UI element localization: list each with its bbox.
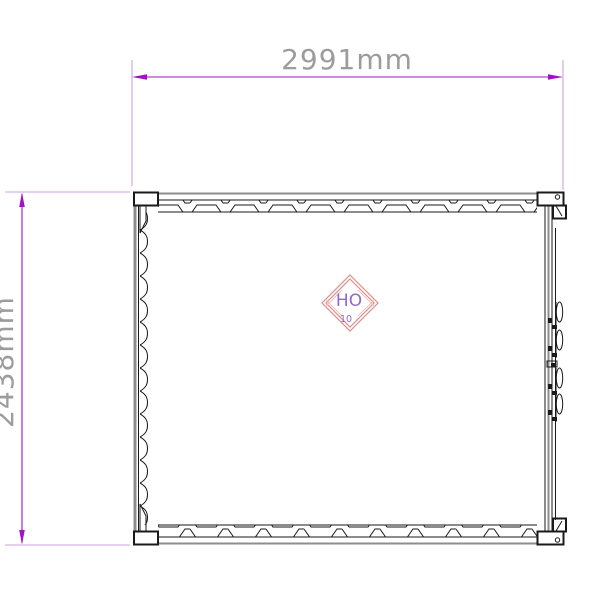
bottom-corrugation [158,525,537,537]
container-plan-drawing: 2991mm 2438mm [0,0,600,600]
dimension-arrow-right-icon [548,74,563,80]
container-body [134,193,566,545]
bottom-rail [157,525,538,544]
drawing-canvas: 2991mm 2438mm [0,0,600,600]
right-door [545,206,563,531]
top-corrugation [158,201,537,213]
left-corrugation [139,212,149,525]
left-wall [135,206,149,531]
dimension-arrow-left-icon [132,74,147,80]
left-dimension: 2438mm [0,192,130,545]
top-rail [157,194,538,213]
logo-text-line2: 10 [340,314,352,325]
logo-diamond: HO 10 [322,275,378,331]
dimension-arrow-down-icon [19,530,25,545]
dimension-arrow-up-icon [19,193,25,208]
top-dimension: 2991mm [132,43,563,190]
height-dimension-label: 2438mm [0,296,20,428]
width-dimension-label: 2991mm [281,43,413,76]
logo-text-line1: HO [336,291,362,311]
